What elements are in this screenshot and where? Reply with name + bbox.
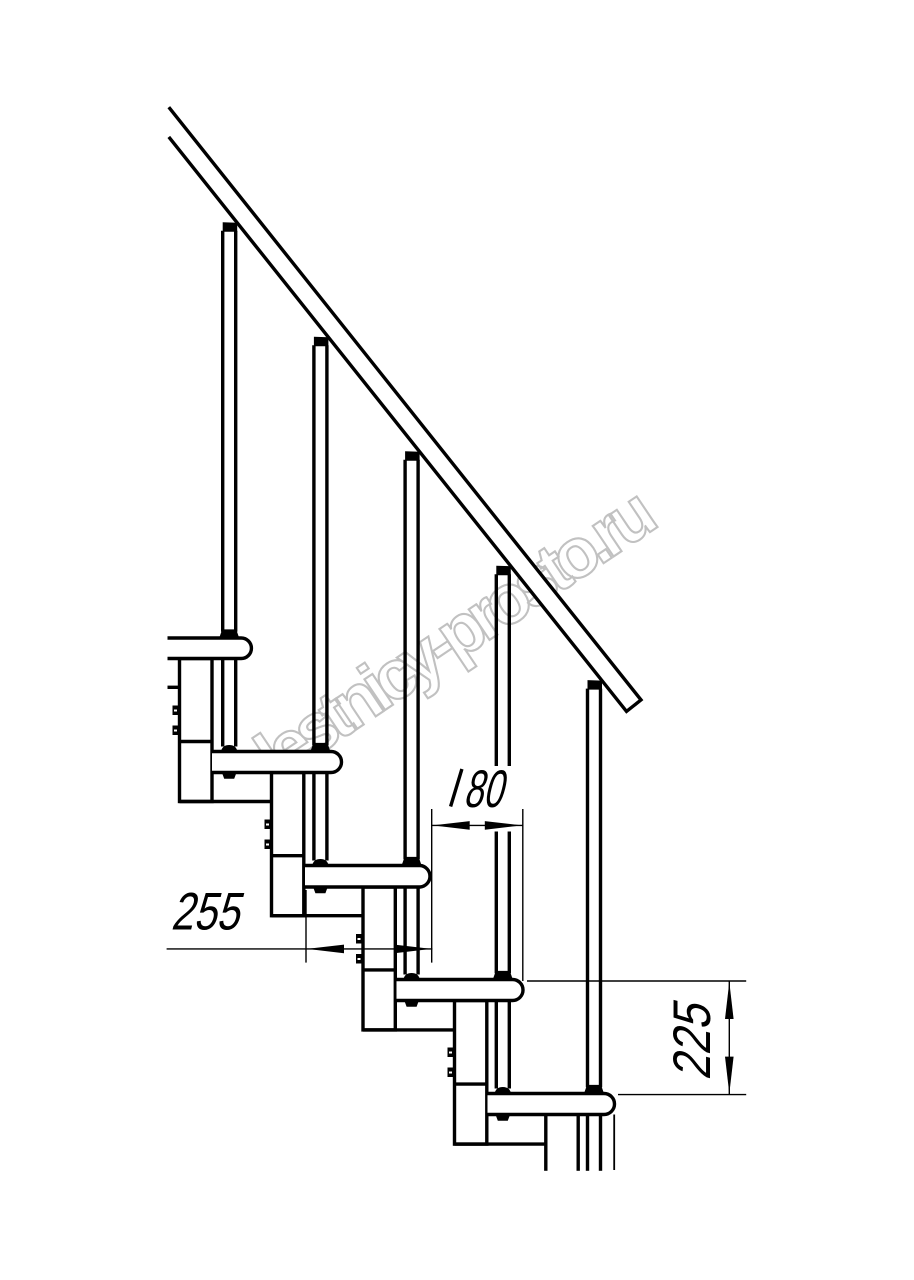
svg-text:225: 225 [662,993,721,1083]
svg-text:255: 255 [167,882,250,941]
svg-text:lestnicy-prosto.ru: lestnicy-prosto.ru [241,474,666,795]
